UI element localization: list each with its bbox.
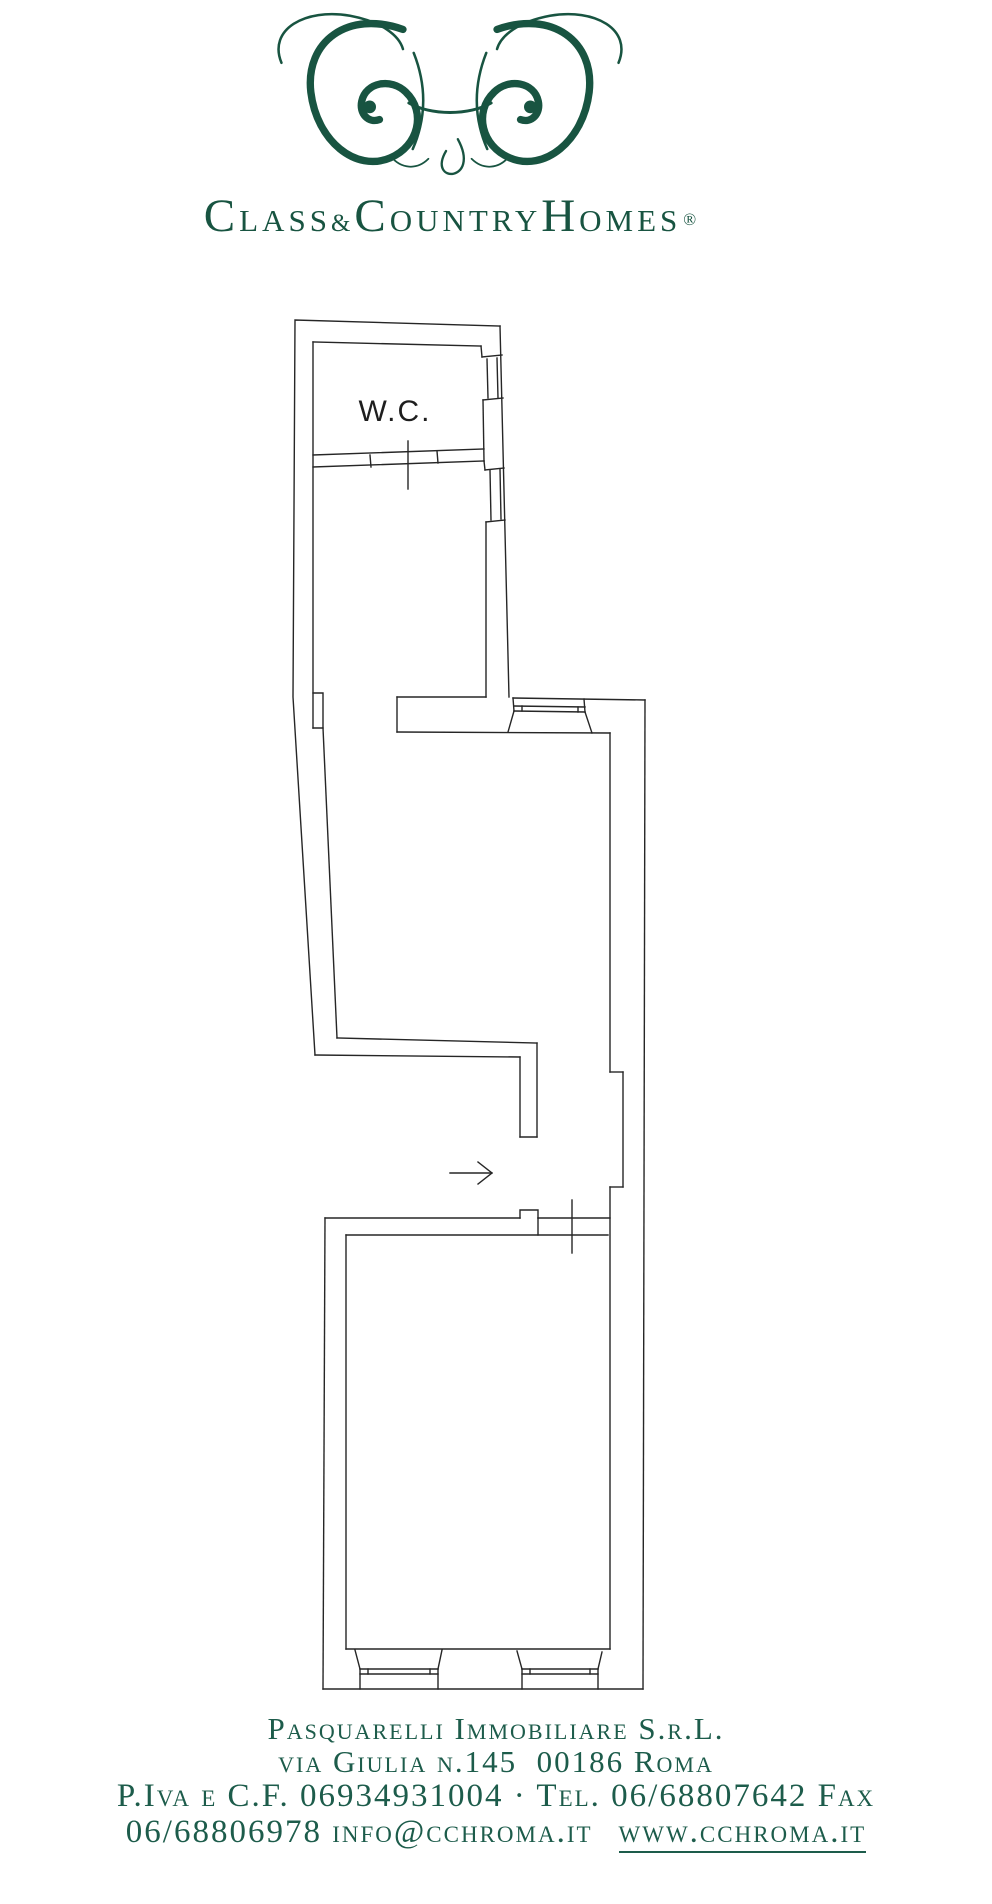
room-label-wc: W.C.	[359, 395, 432, 428]
agency-footer: Pasquarelli Immobiliare S.r.L. via Giuli…	[0, 1712, 992, 1850]
floorplan-walls	[293, 320, 645, 1689]
agency-vat-tel: P.Iva e C.F. 06934931004 · Tel. 06/68807…	[0, 1779, 992, 1815]
agency-fax-email: 06/68806978 info@cchroma.it	[126, 1814, 593, 1850]
agency-name: Pasquarelli Immobiliare S.r.L.	[0, 1712, 992, 1745]
floorplan-drawing: W.C.	[0, 0, 992, 1904]
agency-address: via Giulia n.145 00186 Roma	[0, 1745, 992, 1778]
scanned-floorplan-page: CLASS&COUNTRYHOMES®	[0, 0, 992, 1904]
agency-website-url: www.cchroma.it	[619, 1814, 867, 1853]
entrance-arrow-icon	[450, 1162, 492, 1184]
agency-fax-email-web: 06/68806978 info@cchroma.itwww.cchroma.i…	[0, 1815, 992, 1851]
